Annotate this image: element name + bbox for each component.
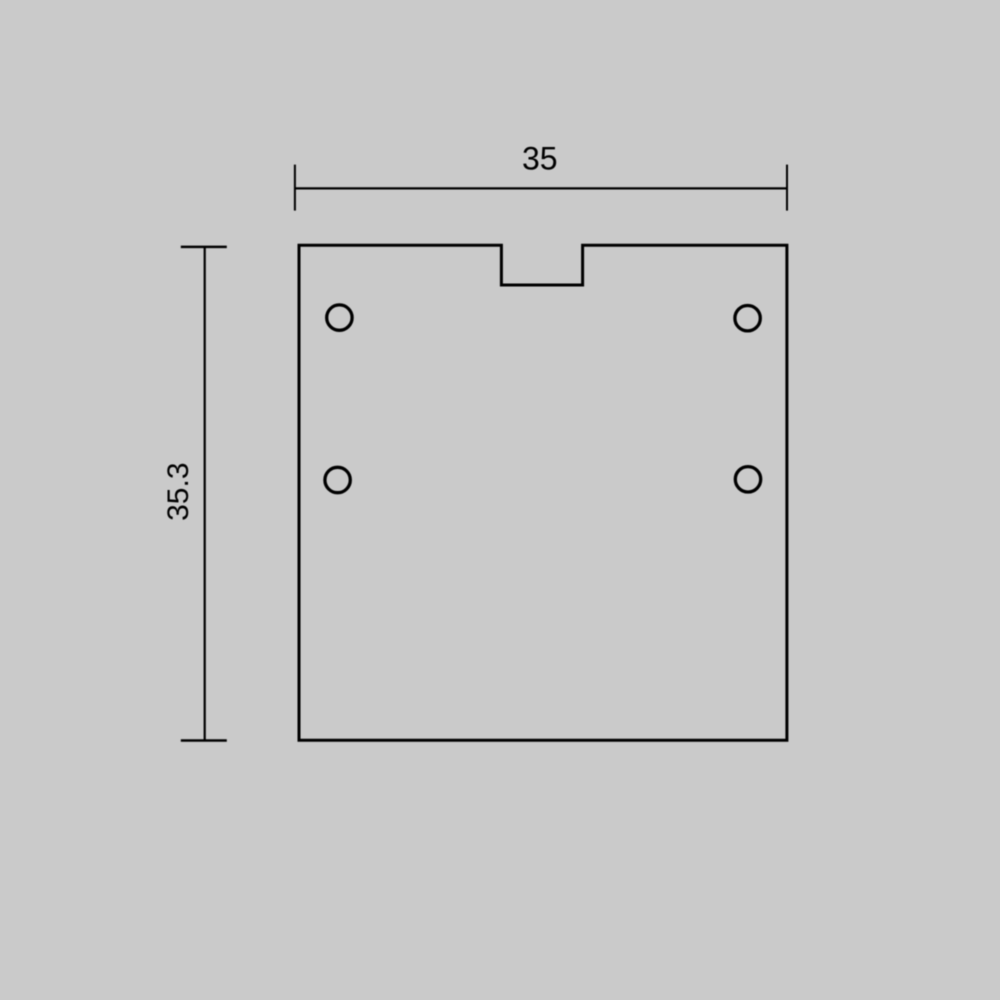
svg-text:35.3: 35.3 [162,463,195,521]
svg-text:35: 35 [522,141,558,177]
